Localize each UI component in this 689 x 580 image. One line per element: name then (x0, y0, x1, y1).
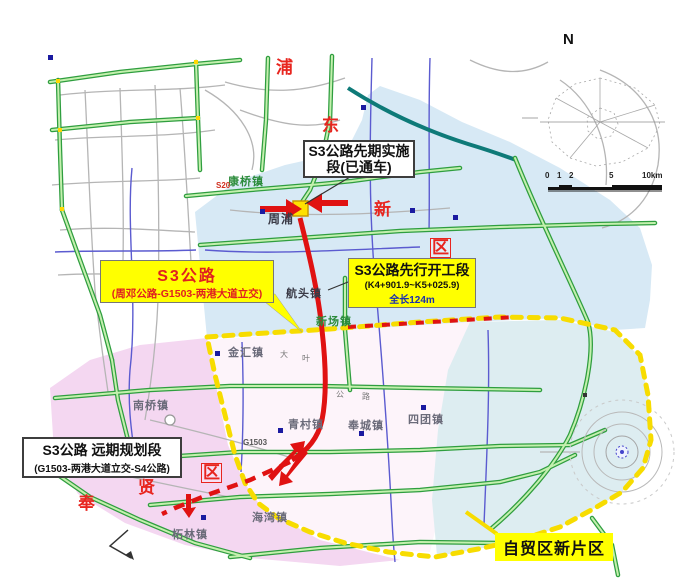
lingang-region (432, 320, 651, 556)
town-fengcheng: 奉城镇 (348, 420, 384, 433)
wind-rose (522, 78, 665, 166)
town-zhoupu: 周浦 (268, 213, 294, 227)
callout-advance-chainage: (K4+901.9~K5+025.9) (349, 280, 475, 291)
callout-longterm-title: S3公路 远期规划段 (24, 440, 180, 460)
scale-2: 2 (569, 171, 573, 180)
nanqiao-circle-marker (165, 415, 175, 425)
scale-1: 1 (557, 171, 561, 180)
callout-advance-title: S3公路先行开工段 (349, 260, 475, 280)
road-label-s20: S20 (216, 181, 230, 190)
chevron-mark (110, 530, 134, 560)
north-label: N (563, 31, 574, 48)
callout-advance-length: 全长124m (349, 291, 475, 306)
district-char-xin: 新 (374, 200, 391, 220)
town-xinchang: 新场镇 (316, 316, 352, 329)
district-char-qu-pudong: 区 (430, 238, 451, 258)
town-situan: 四团镇 (408, 414, 444, 427)
scale-5: 5 (609, 171, 613, 180)
callout-longterm-subtitle: (G1503-两港大道立交-S4公路) (24, 460, 180, 475)
scale-0: 0 (545, 171, 549, 180)
district-char-qu-fengxian: 区 (201, 463, 222, 483)
callout-s3-road: S3公路 (周邓公路-G1503-两港大道立交) (100, 260, 274, 303)
district-char-feng: 奉 (78, 494, 95, 514)
callout-s3-subtitle: (周邓公路-G1503-两港大道立交) (101, 286, 273, 301)
town-nanqiao: 南桥镇 (133, 400, 169, 413)
intersection-dots (56, 60, 200, 211)
callout-longterm-section: S3公路 远期规划段 (G1503-两港大道立交-S4公路) (22, 437, 182, 478)
district-char-xian: 贤 (138, 478, 155, 498)
callout-initial-section: S3公路先期实施段(已通车) (303, 140, 415, 178)
road-char-ye: 叶 (302, 354, 310, 363)
scale-10km: 10km (642, 171, 662, 180)
road-label-g1503: G1503 (243, 438, 267, 447)
town-qingcun: 青村镇 (288, 419, 324, 432)
district-char-pu: 浦 (276, 58, 293, 78)
callout-advance-section: S3公路先行开工段 (K4+901.9~K5+025.9) 全长124m (348, 258, 476, 308)
road-char-lu: 路 (362, 392, 370, 401)
district-char-dong: 东 (322, 116, 339, 136)
town-kangqiao: 康桥镇 (228, 176, 264, 189)
map: N 0 1 2 5 10km 浦 东 新 区 奉 贤 区 康桥镇 周浦 航头镇 … (0, 0, 689, 580)
road-char-gong: 公 (336, 390, 344, 399)
town-haiwan: 海湾镇 (252, 512, 288, 525)
callout-s3-title: S3公路 (101, 262, 273, 286)
callout-ftz: 自贸区新片区 (495, 533, 613, 561)
road-char-da: 大 (280, 350, 288, 359)
town-zhelin: 柘林镇 (172, 529, 208, 542)
town-hangtou: 航头镇 (286, 288, 322, 301)
town-jinhui: 金汇镇 (228, 347, 264, 360)
